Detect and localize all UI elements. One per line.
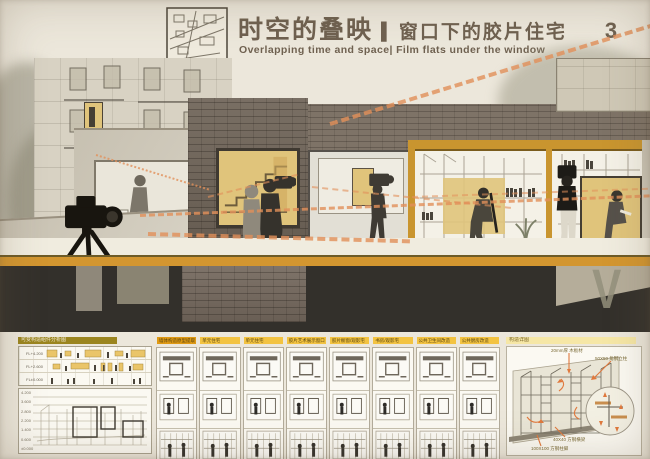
plan-drawing	[244, 348, 283, 385]
annotation-board: 20mm厚 木板材	[551, 348, 583, 354]
elevation-cell	[244, 391, 283, 429]
matrix-row-label: FL+4.200	[19, 351, 45, 356]
section-perspective: V	[0, 56, 650, 332]
detail-elevation-cell	[157, 429, 196, 459]
right-panel-header: 构造详图	[506, 337, 636, 344]
elevation-cell	[157, 391, 196, 429]
matrix-row-label: FL±0.000	[19, 377, 45, 382]
detail-elevation-cell	[244, 429, 283, 459]
building-photo-top-right	[556, 58, 650, 112]
site-elevation-panel: 4.200 3.600 2.800 2.200 1.400 0.600 ±0.0…	[18, 388, 152, 454]
analysis-columns: 墙体构造原型提取	[155, 337, 501, 455]
plan-cell	[157, 348, 196, 391]
level-label: 4.200	[21, 391, 33, 395]
annotation-base: 100X100 方钢柱脚	[531, 446, 568, 452]
plan-drawing	[460, 348, 499, 385]
column-header-label: 胶片艺术展示窗口	[287, 337, 326, 344]
title-main: 时空的叠映	[238, 16, 373, 44]
annotation-post: 50X50 角钢立柱	[595, 356, 627, 362]
level-label: ±0.000	[21, 447, 33, 451]
analysis-column: 单元住宅	[198, 337, 241, 459]
detail-elevation-cell	[417, 429, 456, 459]
figure-walking-camera	[360, 172, 400, 248]
detail-drawing	[330, 429, 369, 459]
analysis-column: 单元住宅	[242, 337, 285, 459]
column-header-label: 单元住宅	[244, 337, 283, 344]
elevation-drawing	[373, 391, 412, 423]
subtitle-en: Overlapping time and space| Film flats u…	[239, 44, 545, 56]
matrix-row-2: FL+2.600	[19, 360, 151, 373]
column-header-label: 公共卫生间改造	[417, 337, 456, 344]
elevation-drawing	[460, 391, 499, 423]
detail-elevation-cell	[330, 429, 369, 459]
site-elevation-drawing	[33, 391, 147, 449]
foundation-pier-2	[117, 266, 169, 304]
elevation-drawing	[200, 391, 239, 423]
detail-drawing	[460, 429, 499, 459]
analysis-column: 胶片橱窗/观影宅	[328, 337, 371, 459]
plan-cell	[287, 348, 326, 391]
plan-drawing	[157, 348, 196, 385]
plan-cell	[373, 348, 412, 391]
elevation-cell	[330, 391, 369, 429]
column-cells	[416, 347, 457, 459]
plan-drawing	[330, 348, 369, 385]
elevation-cell	[200, 391, 239, 429]
matrix-row-1: FL+4.200	[19, 347, 151, 360]
detail-elevation-cell	[460, 429, 499, 459]
plan-cell	[200, 348, 239, 391]
plan-cell	[417, 348, 456, 391]
plan-drawing	[287, 348, 326, 385]
matrix-row-icons	[45, 374, 149, 385]
matrix-row-icons	[45, 361, 149, 372]
detail-drawing	[157, 429, 196, 459]
column-header-label: 墙体构造原型提取	[157, 337, 196, 344]
elevation-cell	[417, 391, 456, 429]
elevation-drawing	[417, 391, 456, 423]
elevation-levels: 4.200 3.600 2.800 2.200 1.400 0.600 ±0.0…	[21, 391, 33, 451]
component-matrix-panel: FL+4.200 FL+2.600 FL±0.000	[18, 346, 152, 386]
column-cells	[286, 347, 327, 459]
title-sub: 窗口下的胶片住宅	[399, 22, 567, 43]
elevation-drawing	[244, 391, 283, 423]
column-header-label: 公共厨房改造	[460, 337, 499, 344]
elevation-drawing	[330, 391, 369, 423]
figure-in-upper-window	[89, 107, 95, 127]
left-panel-header: 可变构造组件分析图	[18, 337, 117, 344]
analysis-column: 书房/观影宅	[371, 337, 414, 459]
matrix-row-icons	[45, 348, 149, 359]
elevation-cell	[287, 391, 326, 429]
detail-drawing	[287, 429, 326, 459]
column-cells	[199, 347, 240, 459]
elevation-drawing	[287, 391, 326, 423]
level-label: 2.200	[21, 419, 33, 423]
plan-cell	[244, 348, 283, 391]
board-title: 时空的叠映|窗口下的胶片住宅3	[238, 10, 619, 46]
level-label: 2.800	[21, 410, 33, 414]
section-b-top-beam	[408, 140, 650, 151]
plan-drawing	[373, 348, 412, 385]
foundation-brick-patch	[182, 266, 306, 322]
detail-elevation-cell	[373, 429, 412, 459]
column-cells	[459, 347, 500, 459]
level-label: 0.600	[21, 438, 33, 442]
matrix-row-label: FL+2.600	[19, 364, 45, 369]
detail-drawing	[373, 429, 412, 459]
foundation-pier-1	[76, 266, 102, 311]
analysis-column: 墙体构造原型提取	[155, 337, 198, 459]
detail-drawing	[417, 429, 456, 459]
detail-elevation-cell	[287, 429, 326, 459]
column-header-label: 书房/观影宅	[373, 337, 412, 344]
title-divider: |	[378, 19, 395, 43]
analysis-column: 公共卫生间改造	[415, 337, 458, 459]
level-label: 3.600	[21, 400, 33, 404]
column-cells	[372, 347, 413, 459]
elevation-drawing	[157, 391, 196, 423]
elevation-cell	[460, 391, 499, 429]
plan-cell	[460, 348, 499, 391]
detail-drawing	[200, 429, 239, 459]
column-cells	[156, 347, 197, 459]
detail-elevation-cell	[200, 429, 239, 459]
column-cells	[243, 347, 284, 459]
v-watermark: V	[592, 256, 621, 321]
analysis-column: 胶片艺术展示窗口	[285, 337, 328, 459]
plan-drawing	[200, 348, 239, 385]
matrix-row-3: FL±0.000	[19, 373, 151, 385]
column-header-label: 单元住宅	[200, 337, 239, 344]
presentation-board: 时空的叠映|窗口下的胶片住宅3 Overlapping time and spa…	[0, 0, 650, 459]
analysis-column: 公共厨房改造	[458, 337, 501, 459]
annotation-beam: 40X40 方钢横梁	[553, 437, 585, 443]
detail-drawing	[244, 429, 283, 459]
plan-drawing	[417, 348, 456, 385]
construction-detail-panel: 20mm厚 木板材 50X50 角钢立柱 40X40 方钢横梁 100X100 …	[506, 346, 642, 456]
plan-cell	[330, 348, 369, 391]
level-label: 1.400	[21, 428, 33, 432]
column-header-label: 胶片橱窗/观影宅	[330, 337, 369, 344]
column-cells	[329, 347, 370, 459]
elevation-cell	[373, 391, 412, 429]
